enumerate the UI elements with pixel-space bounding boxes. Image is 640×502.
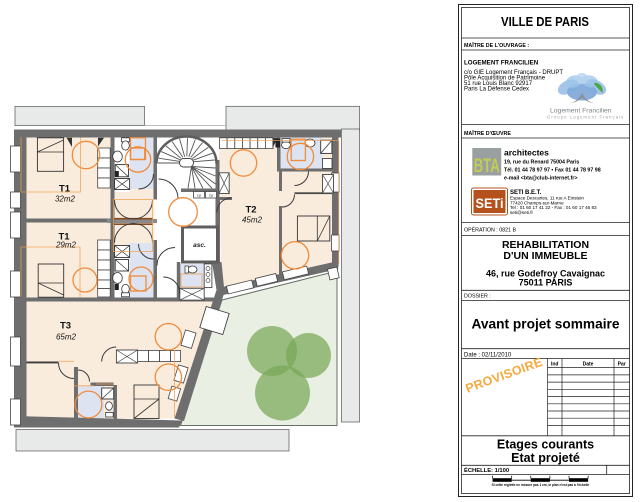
- svg-text:Etages courants: Etages courants: [497, 438, 594, 452]
- svg-text:19, rue du Renard 75004 Paris: 19, rue du Renard 75004 Paris: [504, 160, 579, 166]
- svg-text:65m2: 65m2: [56, 333, 77, 342]
- svg-text:Avant projet sommaire: Avant projet sommaire: [472, 317, 620, 332]
- svg-text:T3: T3: [60, 321, 71, 332]
- svg-text:Groupe Logement Français: Groupe Logement Français: [547, 115, 624, 120]
- svg-text:BTA: BTA: [474, 156, 500, 177]
- svg-text:29m2: 29m2: [55, 241, 77, 250]
- svg-text:Logement Francilien: Logement Francilien: [550, 108, 612, 115]
- svg-text:seti@seti.fr: seti@seti.fr: [510, 210, 534, 215]
- svg-text:ÉCHELLE: 1/100: ÉCHELLE: 1/100: [464, 466, 509, 474]
- svg-text:LOGEMENT FRANCILIEN: LOGEMENT FRANCILIEN: [464, 60, 539, 67]
- svg-text:D'UN IMMEUBLE: D'UN IMMEUBLE: [503, 250, 587, 262]
- svg-text:32m2: 32m2: [55, 195, 76, 204]
- svg-text:asc.: asc.: [193, 242, 206, 249]
- svg-text:Paris La Défense Cedex: Paris La Défense Cedex: [464, 87, 529, 93]
- svg-text:Si cette réglette ne mesure pa: Si cette réglette ne mesure pas 1 cm, le…: [492, 483, 590, 487]
- svg-text:architectes: architectes: [504, 148, 549, 158]
- svg-text:T2: T2: [245, 205, 256, 216]
- svg-text:SETi: SETi: [476, 196, 504, 211]
- svg-text:45m2: 45m2: [242, 216, 263, 225]
- svg-text:75011 PARIS: 75011 PARIS: [519, 278, 573, 288]
- svg-text:Ind: Ind: [551, 362, 559, 368]
- svg-text:Par: Par: [618, 362, 626, 368]
- svg-text:T1: T1: [59, 184, 71, 195]
- svg-text:Date : 02/11/2010: Date : 02/11/2010: [464, 353, 512, 359]
- svg-text:Tél. 01 44 78 97 97 • Fax 01 4: Tél. 01 44 78 97 97 • Fax 01 44 78 97 98: [504, 168, 601, 174]
- svg-text:Date: Date: [583, 362, 594, 368]
- svg-text:MAÎTRE DE L'OUVRAGE :: MAÎTRE DE L'OUVRAGE :: [464, 41, 529, 49]
- svg-text:DOSSIER :: DOSSIER :: [464, 294, 491, 300]
- svg-text:OPÉRATION : 0821 B: OPÉRATION : 0821 B: [464, 227, 516, 234]
- svg-text:e-mail <bta@club-internet.fr>: e-mail <bta@club-internet.fr>: [504, 175, 577, 181]
- svg-text:MAÎTRE D'ŒUVRE: MAÎTRE D'ŒUVRE: [464, 129, 511, 137]
- svg-text:VILLE DE PARIS: VILLE DE PARIS: [501, 15, 589, 29]
- svg-text:Etat projeté: Etat projeté: [511, 451, 580, 465]
